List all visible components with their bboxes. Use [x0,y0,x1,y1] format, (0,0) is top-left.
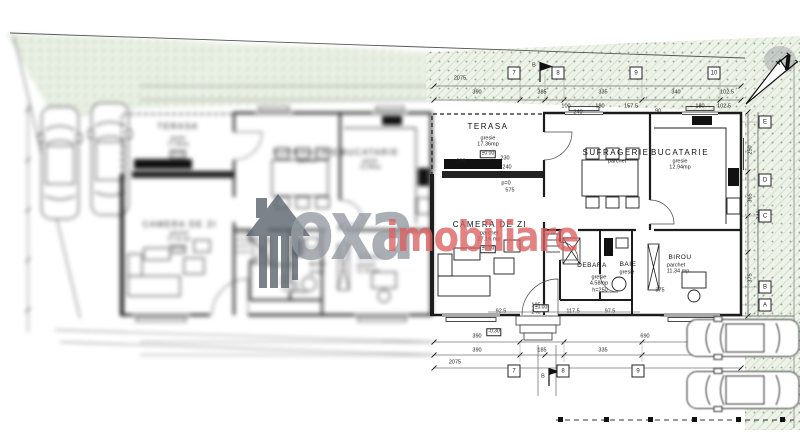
dim-top-1025: 102.5 [720,90,734,96]
grid-bubble-bottom-9: 9 [632,365,645,378]
room-area-terasa: 17.36mp [167,142,188,148]
dim-bottom-total: 2075 [449,360,461,366]
dim-sub-100: 100 [561,104,570,110]
grid-bubble-top-9: 9 [630,67,643,80]
room-area-birou: 11.34 mp [667,269,690,275]
grid-bubble-right-b: B [759,281,772,294]
floor-plan-screenshot: TERASA gresie 17.36mp ±0.00 SUFRAGERIE p… [0,0,800,445]
dim-bot2-335: 335 [598,348,607,354]
dim-terasa-575: 575 [505,188,514,194]
dim-right-250: 250 [748,145,754,154]
dim-right-365: 365 [748,193,754,202]
grid-bubble-right-a: A [759,299,772,312]
floor-plan-unit-right: TERASA gresie 17.36mp ±0.00 SUFRAGERIE p… [430,112,742,316]
dim-bot1-690: 690 [640,334,649,340]
room-label-bucatarie: BUCATARIE [651,149,709,157]
dim-sub-1025: 102.5 [717,104,731,110]
level-terasa: ±0.00 [480,150,496,158]
room-label-bucatarie: BUCATARIE [341,149,399,157]
floor-plan-unit-left: TERASA gresie 17.36mp ±0.00 SUFRAGERIE p… [120,112,432,316]
grid-bubble-bottom-8: 8 [557,365,570,378]
level-camera: ±0.00 [170,245,186,253]
room-finish-baie: gresie [620,270,635,276]
room-label-camera-de-zi: CAMERA DE ZI [143,221,217,229]
level-terasa: ±0.00 [170,150,186,158]
grid-bubble-bottom-7: 7 [508,365,521,378]
dim-top-340: 340 [671,90,680,96]
grid-bubble-right-e: E [759,116,772,129]
room-area-bucatarie: 12.94mp [669,165,690,171]
room-area-camera: 27.16 mp [168,237,191,243]
room-label-sufragerie: SUFRAGERIE [272,149,339,157]
dim-terasa-p0: p=0 [501,181,510,187]
room-finish-sufragerie: parchet [608,159,626,165]
dim-top-total: 2075 [454,76,466,82]
grid-bubble-top-10: 10 [708,67,721,80]
room-label-sufragerie: SUFRAGERIE [582,149,649,157]
level-minus-030: -0.30 [486,328,501,336]
room-label-baie: BAIE [310,262,327,269]
dim-terasa-240: 240 [502,165,511,171]
north-arrow: N [740,40,798,110]
grass-hatch-area-left [0,28,432,122]
room-label-birou: BIROU [668,255,691,262]
dim-top-335: 335 [598,90,607,96]
dim-sub-240: 240 [573,110,582,116]
dim-terasa-230: 230 [500,156,509,162]
room-label-baie: BAIE [620,262,637,269]
dim-ent-375: 375 [655,288,664,294]
grid-bubble-right-c: C [759,210,772,223]
dim-sub-180b: 180 [695,104,704,110]
room-height-debara: h=250 [282,288,297,294]
room-area-debara: 4.58mp [280,281,298,287]
room-finish-sufragerie: parchet [298,159,316,165]
room-area-terasa: 17.36mp [477,142,498,148]
room-label-debara: DEBARA [267,263,297,270]
grid-bubble-right-d: D [759,174,772,187]
room-label-debara: DEBARA [577,263,607,270]
dim-bot2-185: 185 [537,348,546,354]
dim-bot1-390: 390 [472,334,481,340]
grid-bubble-top-7: 7 [508,67,521,80]
level-entrance: ±0.00 [533,304,549,312]
room-finish-baie: gresie [310,270,325,276]
dim-right-375: 375 [748,273,754,282]
flag-label-bottom: B [541,374,545,380]
room-height-debara: h=250 [592,288,607,294]
room-label-camera-de-zi: CAMERA DE ZI [453,221,527,229]
room-label-birou: BIROU [358,255,381,262]
room-area-birou: 11.34 mp [357,269,380,275]
room-area-debara: 4.58mp [590,281,608,287]
dim-sub-180a: 180 [595,104,604,110]
room-area-camera: 27.16 mp [478,237,501,243]
level-camera: ±0.00 [480,245,496,253]
grid-bubble-top-8: 8 [552,67,565,80]
dim-ent-975: 97.5 [605,309,616,315]
dim-ent-925: 92.5 [496,309,507,315]
room-area-bucatarie: 12.94mp [359,165,380,171]
room-label-terasa: TERASA [157,123,198,131]
dim-ent-1175: 117.5 [566,309,579,315]
dim-sub-1575: 157.5 [624,104,638,110]
dim-bot2-390: 390 [472,348,481,354]
flag-label-top: B [532,63,536,69]
dim-top-385: 385 [537,90,546,96]
dim-top-390: 390 [472,90,481,96]
room-label-terasa: TERASA [467,123,508,131]
dim-terasa-290: 290 [456,159,465,165]
dim-sub-90: 90 [655,109,661,115]
